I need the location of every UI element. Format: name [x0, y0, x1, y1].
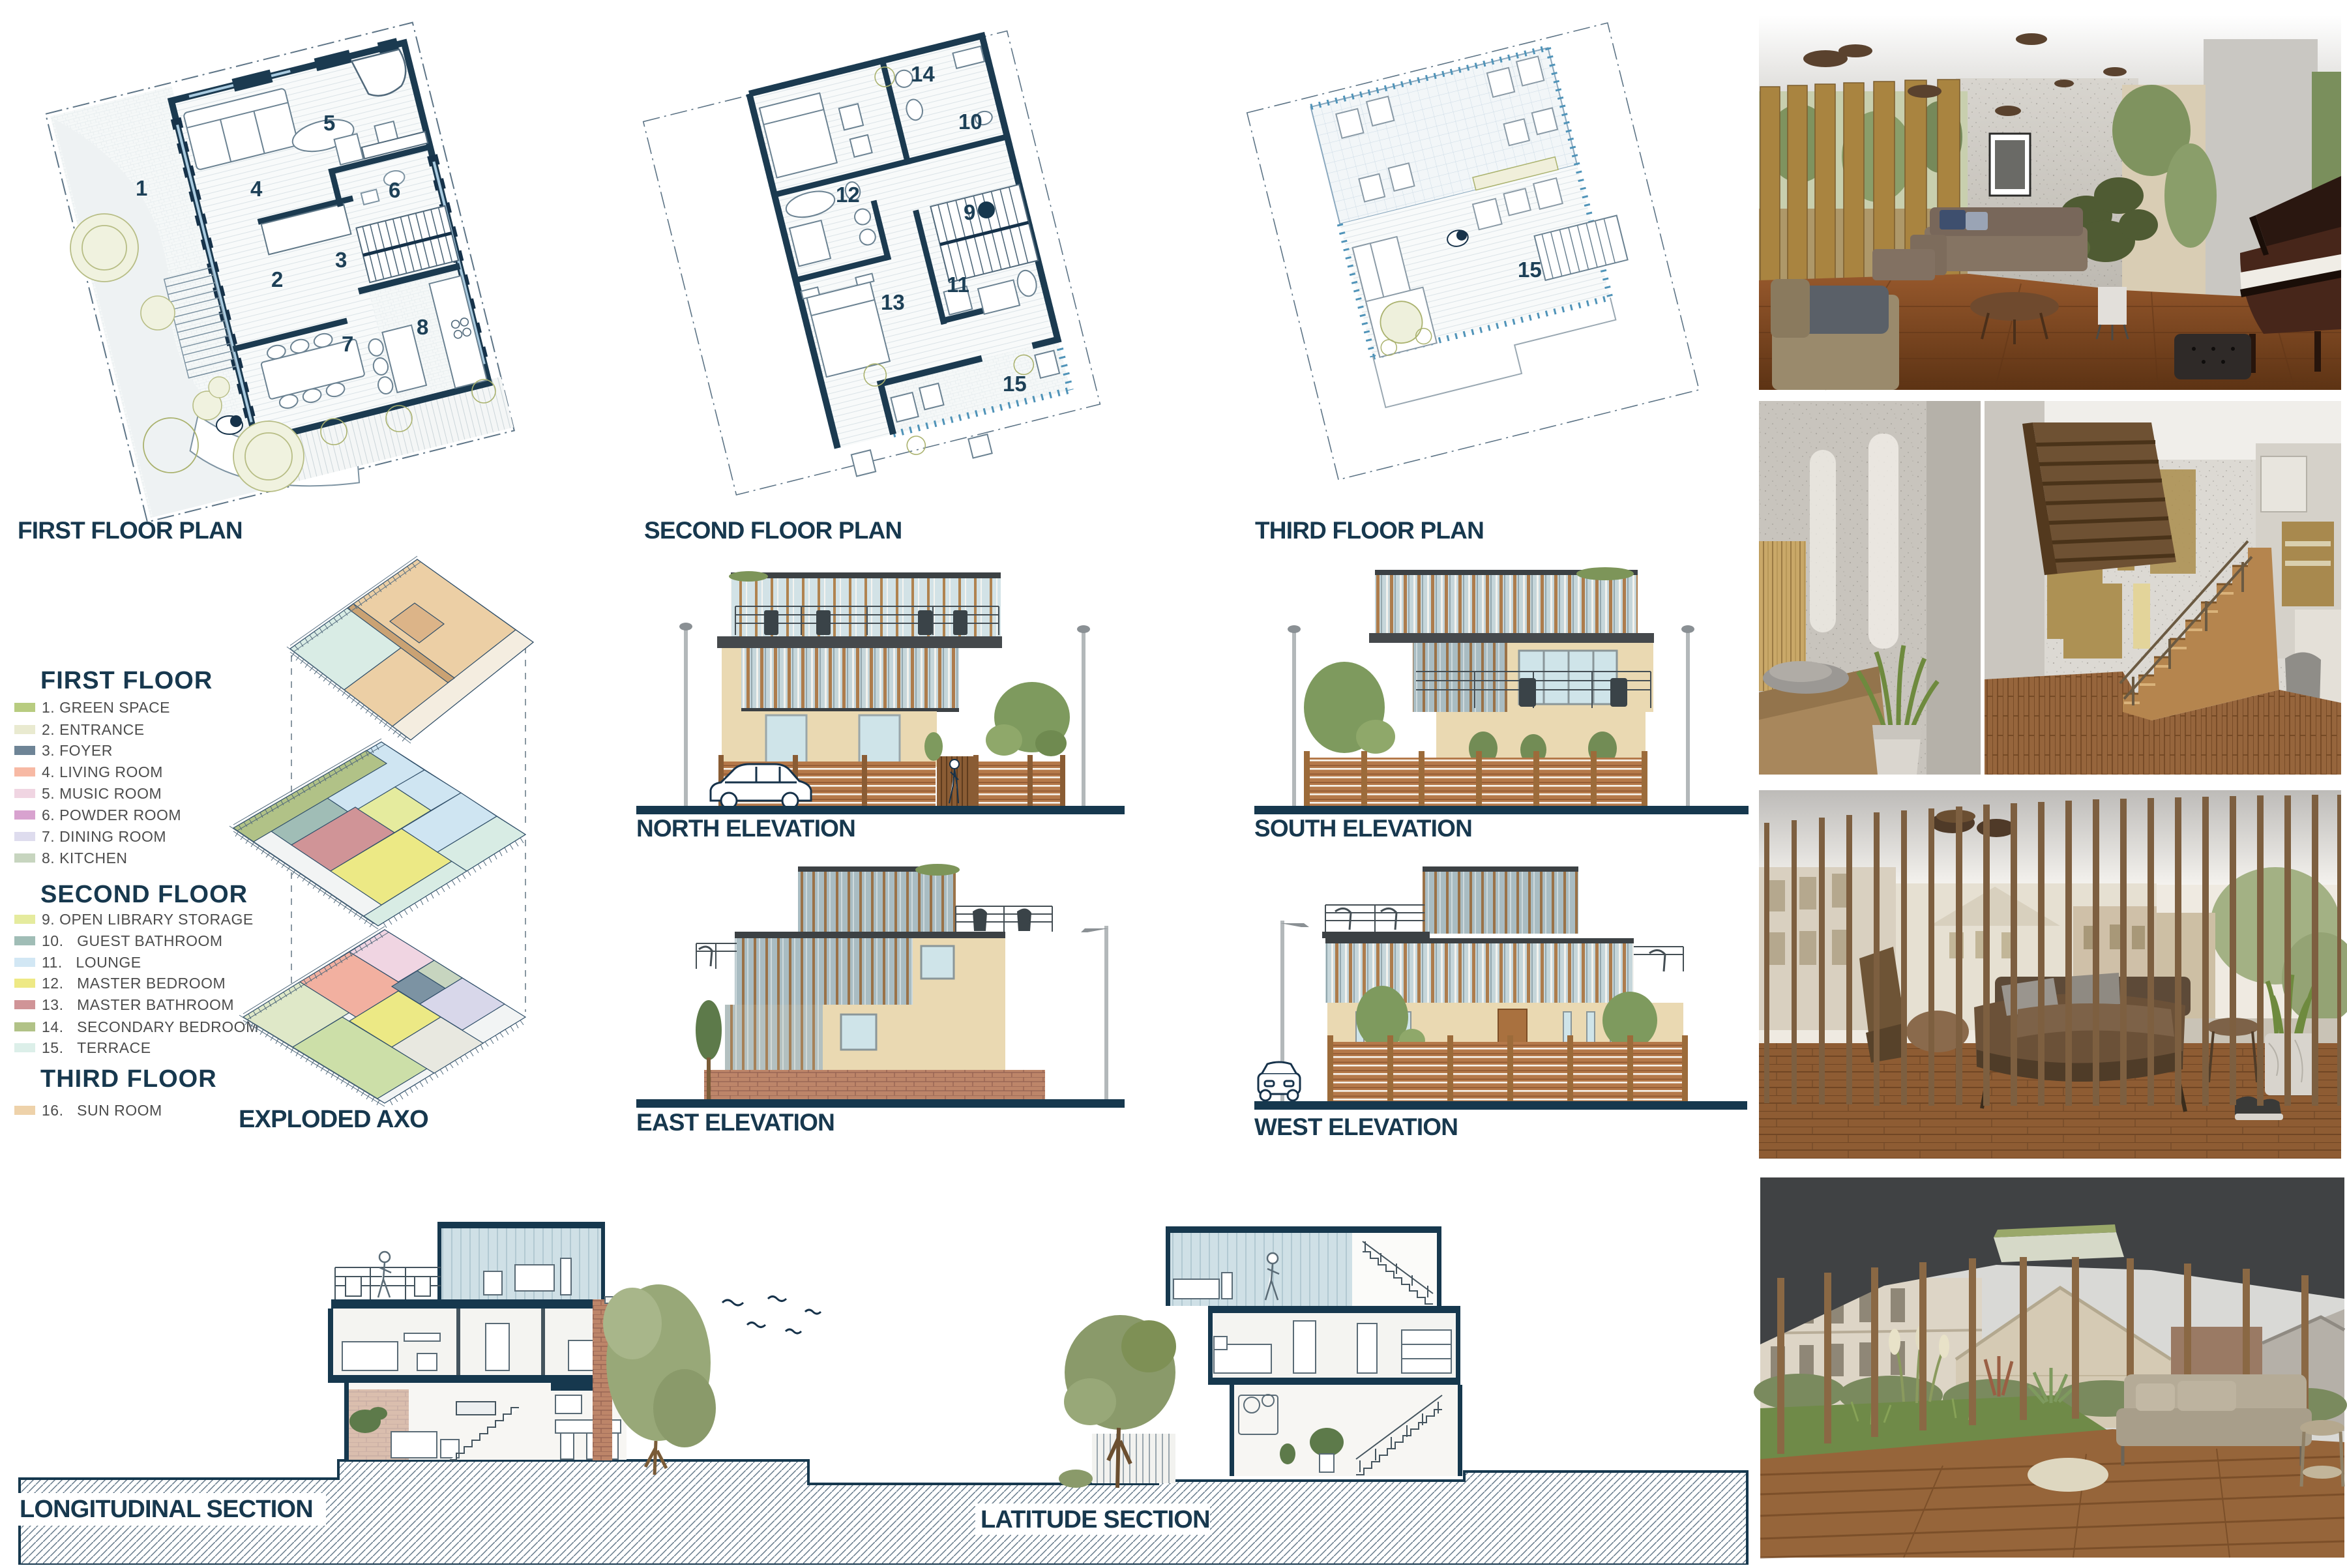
svg-text:9. OPEN LIBRARY STORAGE: 9. OPEN LIBRARY STORAGE	[42, 911, 254, 928]
svg-text:5. MUSIC ROOM: 5. MUSIC ROOM	[42, 785, 162, 802]
svg-text:4. LIVING ROOM: 4. LIVING ROOM	[42, 763, 163, 780]
svg-text:13. MASTER BATHROOM: 13. MASTER BATHROOM	[42, 996, 234, 1013]
svg-text:8: 8	[417, 315, 428, 339]
svg-text:15: 15	[1003, 372, 1027, 396]
svg-text:3: 3	[335, 248, 347, 272]
svg-text:14: 14	[911, 62, 935, 86]
svg-text:16. SUN ROOM: 16. SUN ROOM	[42, 1102, 162, 1119]
svg-text:14. SECONDARY BEDROOM: 14. SECONDARY BEDROOM	[42, 1018, 259, 1035]
svg-text:NORTH ELEVATION: NORTH ELEVATION	[636, 815, 855, 842]
svg-text:LATITUDE SECTION: LATITUDE SECTION	[981, 1506, 1210, 1533]
svg-text:SOUTH ELEVATION: SOUTH ELEVATION	[1254, 815, 1472, 842]
svg-text:EXPLODED AXO: EXPLODED AXO	[239, 1106, 428, 1133]
svg-text:FIRST FLOOR PLAN: FIRST FLOOR PLAN	[18, 517, 243, 544]
svg-text:THIRD FLOOR: THIRD FLOOR	[40, 1065, 217, 1093]
svg-text:15. TERRACE: 15. TERRACE	[42, 1039, 151, 1056]
svg-text:9: 9	[964, 200, 975, 224]
svg-text:SECOND FLOOR PLAN: SECOND FLOOR PLAN	[644, 517, 902, 544]
svg-text:10: 10	[958, 110, 982, 134]
svg-text:7. DINING ROOM: 7. DINING ROOM	[42, 828, 166, 845]
svg-text:2: 2	[271, 267, 283, 291]
svg-text:3. FOYER: 3. FOYER	[42, 742, 113, 759]
svg-text:LONGITUDINAL SECTION: LONGITUDINAL SECTION	[20, 1496, 313, 1523]
svg-text:13: 13	[881, 290, 905, 314]
svg-text:11. LOUNGE: 11. LOUNGE	[42, 954, 141, 971]
svg-text:2. ENTRANCE: 2. ENTRANCE	[42, 721, 145, 738]
svg-text:15: 15	[1518, 258, 1542, 282]
svg-text:5: 5	[323, 111, 335, 135]
svg-text:WEST ELEVATION: WEST ELEVATION	[1254, 1114, 1458, 1140]
svg-text:THIRD FLOOR PLAN: THIRD FLOOR PLAN	[1255, 517, 1484, 544]
svg-text:6. POWDER ROOM: 6. POWDER ROOM	[42, 806, 181, 823]
svg-text:4: 4	[250, 177, 263, 201]
svg-text:8. KITCHEN: 8. KITCHEN	[42, 850, 128, 866]
svg-text:12: 12	[836, 183, 860, 207]
svg-text:7: 7	[342, 332, 353, 356]
svg-text:10. GUEST BATHROOM: 10. GUEST BATHROOM	[42, 932, 223, 949]
svg-text:SECOND FLOOR: SECOND FLOOR	[40, 881, 248, 908]
svg-text:1. GREEN SPACE: 1. GREEN SPACE	[42, 699, 170, 716]
svg-text:1: 1	[136, 176, 147, 200]
svg-text:12. MASTER BEDROOM: 12. MASTER BEDROOM	[42, 975, 226, 992]
svg-text:11: 11	[947, 273, 969, 297]
svg-text:FIRST FLOOR: FIRST FLOOR	[40, 667, 213, 694]
svg-text:6: 6	[389, 178, 400, 202]
svg-text:EAST ELEVATION: EAST ELEVATION	[636, 1109, 834, 1136]
